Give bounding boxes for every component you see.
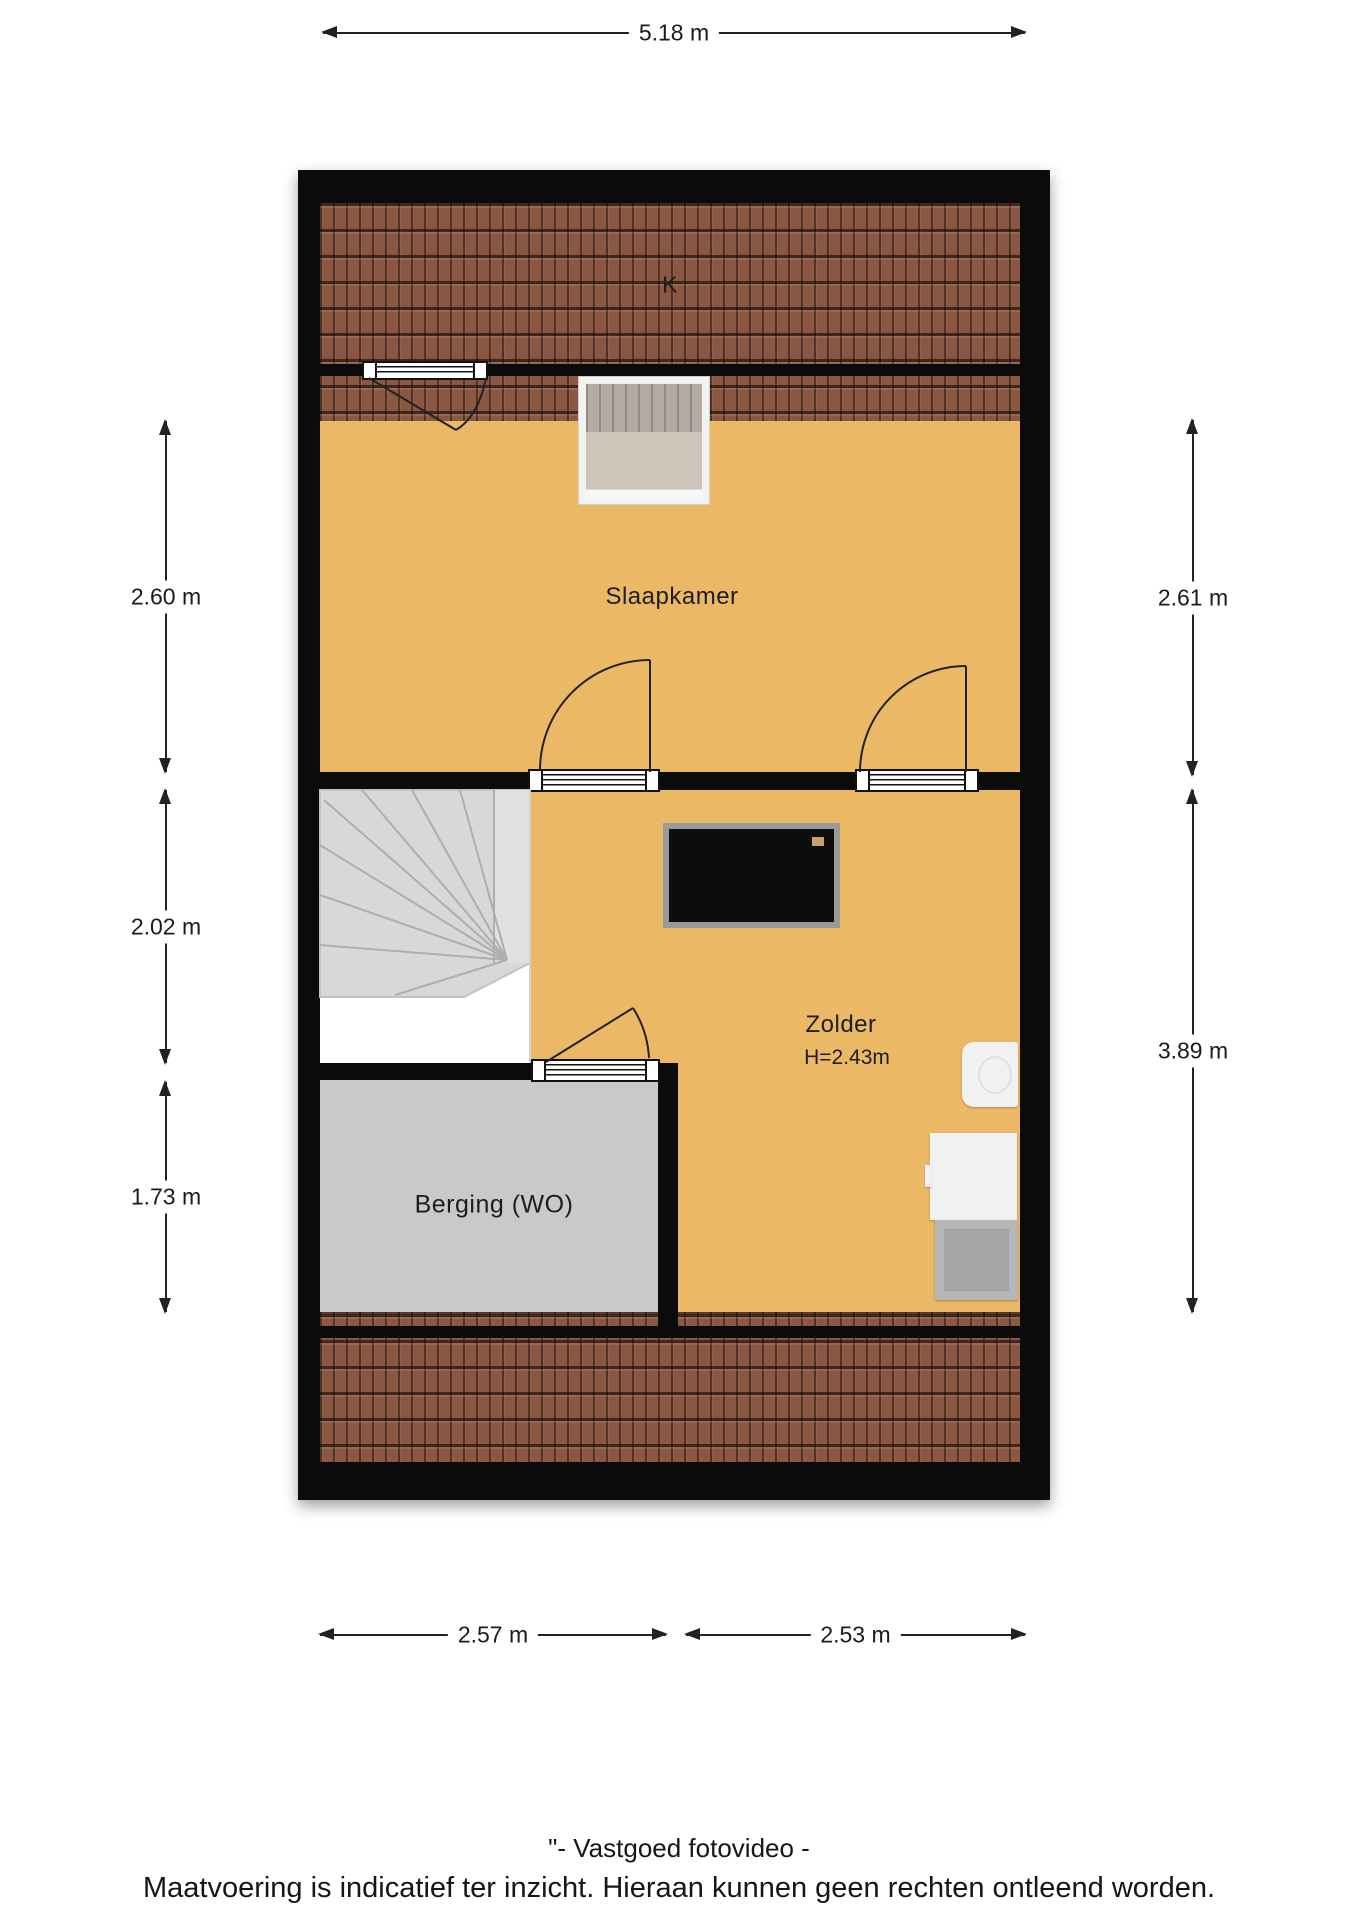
room-label-berging: Berging (WO) (415, 1191, 574, 1220)
door-threshold (545, 1064, 646, 1077)
boiler-detail (978, 1056, 1012, 1094)
wall (658, 772, 857, 790)
dimension-label: 3.89 m (1151, 1035, 1235, 1068)
washing-machine-icon (930, 1133, 1017, 1220)
arrow-right-icon (652, 1628, 668, 1640)
door-slaapkamer-left (528, 769, 660, 792)
arrow-left-icon (318, 1628, 334, 1640)
wall-berging-top (320, 1063, 533, 1080)
boiler-icon (962, 1042, 1018, 1107)
wall (977, 772, 1020, 790)
dimension-label: 2.61 m (1151, 581, 1235, 614)
floorplan-page: K Slaapkamer Zolder H=2.43m Berging (WO)… (0, 0, 1358, 1920)
arrow-up-icon (159, 1080, 171, 1096)
room-label-slaapkamer: Slaapkamer (605, 583, 738, 611)
arrow-down-icon (159, 758, 171, 774)
dimension-label: 2.02 m (124, 910, 208, 943)
dimension-label: 5.18 m (629, 18, 719, 49)
footer-disclaimer: Maatvoering is indicatief ter inzicht. H… (0, 1872, 1358, 1905)
room-label-k: K (662, 272, 678, 299)
room-label-zolder: Zolder (805, 1011, 876, 1039)
roof-window-icon (578, 376, 710, 505)
dimension-label: 2.53 m (810, 1620, 900, 1651)
window-jamb (473, 363, 486, 378)
arrow-up-icon (1186, 418, 1198, 434)
wall-berging-right (658, 1063, 678, 1338)
window-glazing (376, 366, 474, 375)
door-jamb (530, 771, 543, 790)
tv-detail (812, 837, 824, 846)
dimension-label: 2.60 m (124, 580, 208, 613)
arrow-right-icon (1011, 1628, 1027, 1640)
wall (320, 772, 530, 790)
arrow-right-icon (1011, 26, 1027, 38)
arrow-left-icon (684, 1628, 700, 1640)
door-jamb (533, 1061, 546, 1080)
room-height-zolder: H=2.43m (804, 1046, 890, 1070)
footer-credit: "- Vastgoed fotovideo - (0, 1833, 1358, 1864)
window-jamb (364, 363, 377, 378)
roof-window-sill (586, 489, 702, 499)
door-threshold (869, 774, 965, 787)
tv-icon (663, 823, 840, 928)
arrow-left-icon (321, 26, 337, 38)
roof-window-glass (586, 384, 702, 432)
door-jamb (645, 1061, 658, 1080)
knee-wall-window (362, 361, 488, 380)
door-slaapkamer-right (855, 769, 979, 792)
arrow-down-icon (1186, 1298, 1198, 1314)
arrow-up-icon (159, 788, 171, 804)
arrow-down-icon (159, 1298, 171, 1314)
dimension-label: 2.57 m (448, 1620, 538, 1651)
door-threshold (542, 774, 646, 787)
door-jamb (964, 771, 977, 790)
door-jamb (645, 771, 658, 790)
door-berging (531, 1059, 660, 1082)
arrow-up-icon (1186, 788, 1198, 804)
dimension-label: 1.73 m (124, 1181, 208, 1214)
appliance-icon (935, 1220, 1018, 1300)
stairwell-void (320, 790, 530, 1063)
washer-latch (925, 1165, 932, 1187)
arrow-down-icon (159, 1049, 171, 1065)
door-jamb (857, 771, 870, 790)
arrow-up-icon (159, 419, 171, 435)
appliance-detail (944, 1229, 1009, 1291)
arrow-down-icon (1186, 761, 1198, 777)
roof-window-glass (586, 432, 702, 490)
